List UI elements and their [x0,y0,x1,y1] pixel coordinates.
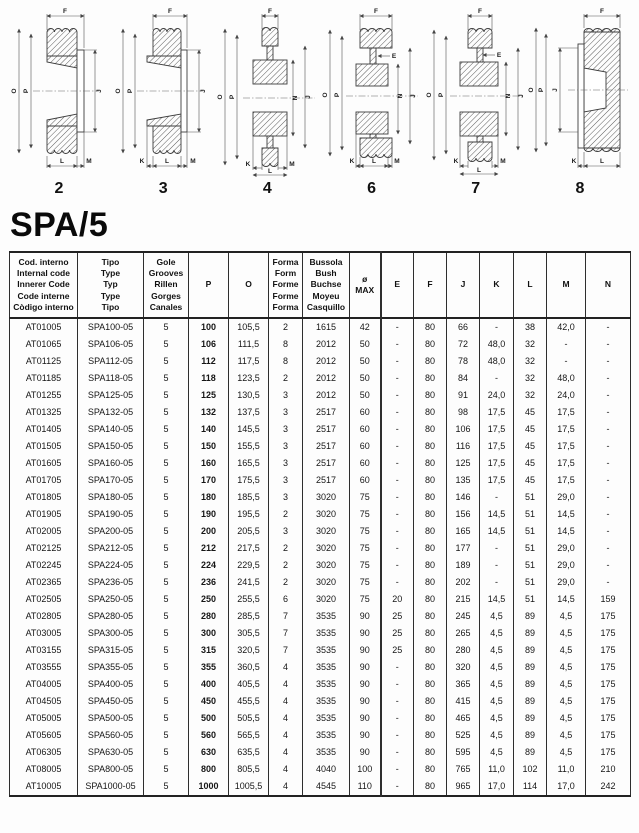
table-cell: 89 [514,693,547,710]
table-cell: 80 [414,489,447,506]
form-number: 4 [215,180,319,198]
table-cell: 17,5 [480,404,514,421]
table-cell: 3020 [303,489,350,506]
table-cell: 5 [144,710,189,727]
table-cell: 89 [514,676,547,693]
table-cell: 2517 [303,421,350,438]
table-cell: 165 [447,523,480,540]
table-cell: - [381,778,414,796]
dim-label-j: J [518,94,525,98]
table-cell: 4 [269,659,303,676]
table-cell: - [381,370,414,387]
table-cell: 159 [586,591,631,608]
pulley-form-8: F O P J K L 8 [528,4,632,198]
table-cell: SPA315-05 [78,642,144,659]
header-type: Tipo Type Typ Type Tipo [78,252,144,318]
table-cell: - [586,489,631,506]
table-cell: SPA160-05 [78,455,144,472]
table-cell: 156 [447,506,480,523]
table-row: AT05605SPA560-055560565,54353590-805254,… [10,727,631,744]
table-cell: SPA450-05 [78,693,144,710]
table-cell: 29,0 [547,557,586,574]
table-cell: 5 [144,370,189,387]
table-cell: 80 [414,710,447,727]
table-cell: 105,5 [229,318,269,336]
table-cell: 45 [514,438,547,455]
table-cell: - [480,540,514,557]
table-body: AT01005SPA100-055100105,52161542-8066-38… [10,318,631,796]
table-cell: 75 [350,557,381,574]
table-cell: 25 [381,608,414,625]
table-cell: 72 [447,336,480,353]
table-cell: - [586,523,631,540]
pulley-diagram-form-2-drawing: F O P J L M [7,4,111,178]
table-cell: 175 [586,642,631,659]
table-cell: - [586,574,631,591]
table-cell: 80 [414,336,447,353]
dim-label-f: F [268,8,272,15]
table-cell: 3535 [303,642,350,659]
table-cell: - [480,489,514,506]
table-cell: 4,5 [480,693,514,710]
table-cell: 80 [414,625,447,642]
table-cell: 4 [269,761,303,778]
table-cell: 90 [350,744,381,761]
table-cell: - [381,318,414,336]
table-cell: 965 [447,778,480,796]
dim-label-m: M [500,158,505,165]
table-cell: 241,5 [229,574,269,591]
table-cell: SPA118-05 [78,370,144,387]
table-cell: 320,5 [229,642,269,659]
table-cell: 195,5 [229,506,269,523]
table-row: AT01005SPA100-055100105,52161542-8066-38… [10,318,631,336]
table-cell: AT01065 [10,336,78,353]
table-cell: 3020 [303,591,350,608]
table-cell: 250 [189,591,229,608]
dim-label-f: F [168,8,172,15]
table-cell: 4040 [303,761,350,778]
table-cell: 2 [269,557,303,574]
table-cell: 465 [447,710,480,727]
table-cell: 210 [586,761,631,778]
table-cell: AT03555 [10,659,78,676]
dim-label-f: F [478,8,482,15]
table-cell: 125 [189,387,229,404]
table-cell: 24,0 [547,387,586,404]
table-cell: 5 [144,659,189,676]
table-cell: 224 [189,557,229,574]
table-cell: SPA630-05 [78,744,144,761]
table-cell: - [381,744,414,761]
table-cell: 4,5 [547,693,586,710]
table-cell: 202 [447,574,480,591]
table-cell: 98 [447,404,480,421]
table-cell: 80 [414,659,447,676]
table-cell: 5 [144,506,189,523]
table-cell: AT03155 [10,642,78,659]
table-cell: 175 [586,676,631,693]
table-cell: 50 [350,353,381,370]
table-cell: 4,5 [480,727,514,744]
table-cell: 14,5 [547,506,586,523]
table-cell: 89 [514,608,547,625]
table-cell: 48,0 [480,336,514,353]
pulley-form-7: F E O P N J K M L 7 [424,4,528,198]
table-cell: 5 [144,404,189,421]
table-cell: 60 [350,455,381,472]
table-cell: 360,5 [229,659,269,676]
header-n: N [586,252,631,318]
table-cell: 4 [269,778,303,796]
table-cell: 5 [144,591,189,608]
table-cell: 175 [586,744,631,761]
table-cell: 80 [414,523,447,540]
table-cell: 110 [350,778,381,796]
table-cell: 215 [447,591,480,608]
catalog-page: F O P J L M 2 [0,0,639,833]
dim-label-j: J [305,95,312,99]
table-cell: AT02005 [10,523,78,540]
table-cell: AT05605 [10,727,78,744]
table-cell: SPA212-05 [78,540,144,557]
table-cell: 17,5 [547,438,586,455]
table-cell: 42,0 [547,318,586,336]
table-cell: AT02125 [10,540,78,557]
table-cell: 3 [269,438,303,455]
table-cell: AT01185 [10,370,78,387]
table-cell: AT06305 [10,744,78,761]
table-cell: 51 [514,574,547,591]
table-cell: 525 [447,727,480,744]
table-cell: 89 [514,727,547,744]
table-cell: SPA400-05 [78,676,144,693]
header-internal-code: Cod. interno Internal code Innerer Code … [10,252,78,318]
dim-label-l: L [165,158,169,165]
dim-label-l: L [268,168,272,175]
table-cell: 80 [414,455,447,472]
table-cell: 75 [350,574,381,591]
table-cell: SPA170-05 [78,472,144,489]
dim-label-m: M [190,158,195,165]
table-cell: - [381,404,414,421]
table-cell: SPA500-05 [78,710,144,727]
form-number: 8 [528,180,632,198]
table-cell: 75 [350,523,381,540]
table-cell: 5 [144,540,189,557]
table-cell: 11,0 [480,761,514,778]
table-cell: 2 [269,318,303,336]
table-cell: SPA180-05 [78,489,144,506]
table-cell: 90 [350,727,381,744]
table-cell: SPA236-05 [78,574,144,591]
table-cell: 205,5 [229,523,269,540]
table-cell: 245 [447,608,480,625]
table-cell: 4,5 [480,608,514,625]
dim-label-j: J [552,88,559,92]
table-cell: 3535 [303,659,350,676]
dim-label-o: O [528,87,535,92]
table-cell: 4,5 [547,744,586,761]
table-row: AT02365SPA236-055236241,52302075-80202-5… [10,574,631,591]
table-cell: 17,0 [547,778,586,796]
dim-label-p: P [438,92,445,97]
pulley-diagram-form-4-drawing: F O P N J K M L [215,4,319,178]
table-cell: 2012 [303,353,350,370]
table-cell: 90 [350,693,381,710]
table-row: AT03155SPA315-055315320,5735359025802804… [10,642,631,659]
table-cell: 2 [269,574,303,591]
header-form: Forma Form Forme Forme Forma [269,252,303,318]
table-cell: SPA300-05 [78,625,144,642]
table-cell: 17,5 [547,455,586,472]
dim-label-o: O [11,88,18,93]
dim-label-p: P [127,88,134,93]
table-cell: 3020 [303,540,350,557]
table-cell: - [381,523,414,540]
header-diameter-max: ø MAX [350,252,381,318]
table-cell: - [381,710,414,727]
table-cell: SPA224-05 [78,557,144,574]
table-cell: 42 [350,318,381,336]
table-cell: AT01005 [10,318,78,336]
table-cell: 265 [447,625,480,642]
table-cell: 280 [447,642,480,659]
table-cell: 5 [144,455,189,472]
form-number: 3 [111,180,215,198]
table-cell: 80 [414,540,447,557]
table-cell: 2517 [303,404,350,421]
table-cell: 32 [514,370,547,387]
table-cell: 165,5 [229,455,269,472]
table-cell: 5 [144,744,189,761]
table-cell: SPA190-05 [78,506,144,523]
pulley-diagram-form-6-drawing: F E O P N J K L M [320,4,424,178]
dim-label-l: L [372,158,376,165]
table-row: AT01705SPA170-055170175,53251760-8013517… [10,472,631,489]
table-cell: SPA250-05 [78,591,144,608]
table-cell: - [586,370,631,387]
table-cell: - [586,387,631,404]
table-cell: SPA106-05 [78,336,144,353]
table-row: AT01255SPA125-055125130,53201250-809124,… [10,387,631,404]
table-cell: 45 [514,404,547,421]
table-cell: SPA1000-05 [78,778,144,796]
table-cell: 117,5 [229,353,269,370]
table-cell: 175 [586,659,631,676]
table-cell: - [586,353,631,370]
table-cell: - [586,404,631,421]
table-cell: 80 [414,608,447,625]
table-cell: 51 [514,489,547,506]
table-cell: 5 [144,353,189,370]
table-cell: 4 [269,693,303,710]
dim-label-m: M [290,161,295,168]
dim-label-f: F [63,8,67,15]
table-cell: 4,5 [480,642,514,659]
table-cell: AT01125 [10,353,78,370]
table-cell: 2517 [303,438,350,455]
table-cell: 11,0 [547,761,586,778]
table-cell: 3535 [303,727,350,744]
table-cell: 106 [447,421,480,438]
table-cell: 80 [414,353,447,370]
table-row: AT02805SPA280-055280285,5735359025802454… [10,608,631,625]
table-cell: AT01905 [10,506,78,523]
table-cell: 14,5 [480,523,514,540]
table-cell: 75 [350,540,381,557]
pulley-form-6: F E O P N J K L M 6 [320,4,424,198]
dim-label-n: N [397,93,404,98]
dim-label-o: O [217,94,224,99]
table-cell: 29,0 [547,489,586,506]
table-cell: 51 [514,523,547,540]
table-cell: 60 [350,438,381,455]
dim-label-k: K [246,161,251,168]
table-cell: SPA140-05 [78,421,144,438]
table-cell: 175,5 [229,472,269,489]
table-cell: 3535 [303,608,350,625]
table-cell: - [381,387,414,404]
table-cell: 305,5 [229,625,269,642]
table-cell: - [381,438,414,455]
table-cell: 125 [447,455,480,472]
table-cell: 17,5 [547,472,586,489]
table-cell: 180 [189,489,229,506]
table-cell: 45 [514,472,547,489]
header-l: L [514,252,547,318]
table-cell: 4,5 [547,676,586,693]
table-cell: 150 [189,438,229,455]
table-cell: - [381,336,414,353]
table-cell: 137,5 [229,404,269,421]
table-cell: 236 [189,574,229,591]
table-cell: 4,5 [480,625,514,642]
table-cell: - [381,761,414,778]
table-cell: 355 [189,659,229,676]
table-cell: 51 [514,591,547,608]
table-cell: AT01705 [10,472,78,489]
dim-label-m: M [394,158,399,165]
header-bush: Bussola Bush Buchse Moyeu Casquillo [303,252,350,318]
table-cell: 3020 [303,506,350,523]
table-cell: 630 [189,744,229,761]
table-cell: - [381,574,414,591]
table-cell: SPA355-05 [78,659,144,676]
table-cell: 123,5 [229,370,269,387]
table-cell: 17,5 [547,404,586,421]
table-row: AT06305SPA630-055630635,54353590-805954,… [10,744,631,761]
table-cell: SPA200-05 [78,523,144,540]
table-cell: - [547,336,586,353]
table-cell: SPA150-05 [78,438,144,455]
table-cell: 3020 [303,523,350,540]
table-cell: 66 [447,318,480,336]
table-cell: - [586,540,631,557]
table-cell: 3 [269,404,303,421]
table-cell: 3 [269,472,303,489]
table-cell: - [480,318,514,336]
table-cell: 2 [269,506,303,523]
spa5-dimension-table: Cod. interno Internal code Innerer Code … [9,251,631,797]
table-cell: 7 [269,625,303,642]
table-cell: 1005,5 [229,778,269,796]
table-cell: 80 [414,778,447,796]
dim-label-p: P [334,92,341,97]
table-cell: 60 [350,404,381,421]
table-cell: 78 [447,353,480,370]
table-cell: 80 [414,744,447,761]
table-cell: 2 [269,370,303,387]
table-row: AT10005SPA1000-05510001005,544545110-809… [10,778,631,796]
table-row: AT05005SPA500-055500505,54353590-804654,… [10,710,631,727]
dim-label-o: O [115,88,122,93]
table-cell: - [586,506,631,523]
table-cell: AT04505 [10,693,78,710]
table-cell: - [586,318,631,336]
table-cell: 132 [189,404,229,421]
table-cell: 17,5 [480,438,514,455]
table-cell: 2012 [303,370,350,387]
table-cell: - [480,574,514,591]
table-cell: 32 [514,353,547,370]
dim-label-k: K [140,158,145,165]
table-cell: - [381,557,414,574]
form-number: 6 [320,180,424,198]
dim-label-l: L [600,158,604,165]
table-cell: 5 [144,336,189,353]
table-row: AT08005SPA800-055800805,544040100-807651… [10,761,631,778]
table-cell: 175 [586,727,631,744]
table-cell: 2 [269,540,303,557]
table-cell: 17,5 [480,421,514,438]
table-cell: 4,5 [547,608,586,625]
table-cell: 5 [144,574,189,591]
table-cell: 2517 [303,455,350,472]
table-cell: 111,5 [229,336,269,353]
table-cell: 140 [189,421,229,438]
table-cell: 500 [189,710,229,727]
table-cell: 5 [144,557,189,574]
table-cell: 80 [414,591,447,608]
table-cell: 75 [350,489,381,506]
pulley-diagram-form-3-drawing: F O P J K L M [111,4,215,178]
table-cell: 80 [414,761,447,778]
table-cell: 14,5 [547,591,586,608]
dim-label-j: J [200,89,207,93]
table-row: AT01805SPA180-055180185,53302075-80146-5… [10,489,631,506]
table-cell: 130,5 [229,387,269,404]
table-cell: 17,5 [480,472,514,489]
table-cell: 90 [350,659,381,676]
table-cell: 14,5 [480,591,514,608]
dim-label-e: E [497,52,502,59]
table-cell: AT03005 [10,625,78,642]
table-cell: 5 [144,778,189,796]
table-cell: 1615 [303,318,350,336]
table-cell: - [381,506,414,523]
table-cell: 100 [350,761,381,778]
table-cell: - [381,659,414,676]
table-row: AT01065SPA106-055106111,58201250-807248,… [10,336,631,353]
table-cell: SPA112-05 [78,353,144,370]
pulley-form-2: F O P J L M 2 [7,4,111,198]
dim-label-l: L [60,158,64,165]
table-cell: 48,0 [480,353,514,370]
table-cell: 145,5 [229,421,269,438]
table-cell: 89 [514,625,547,642]
table-cell: 315 [189,642,229,659]
